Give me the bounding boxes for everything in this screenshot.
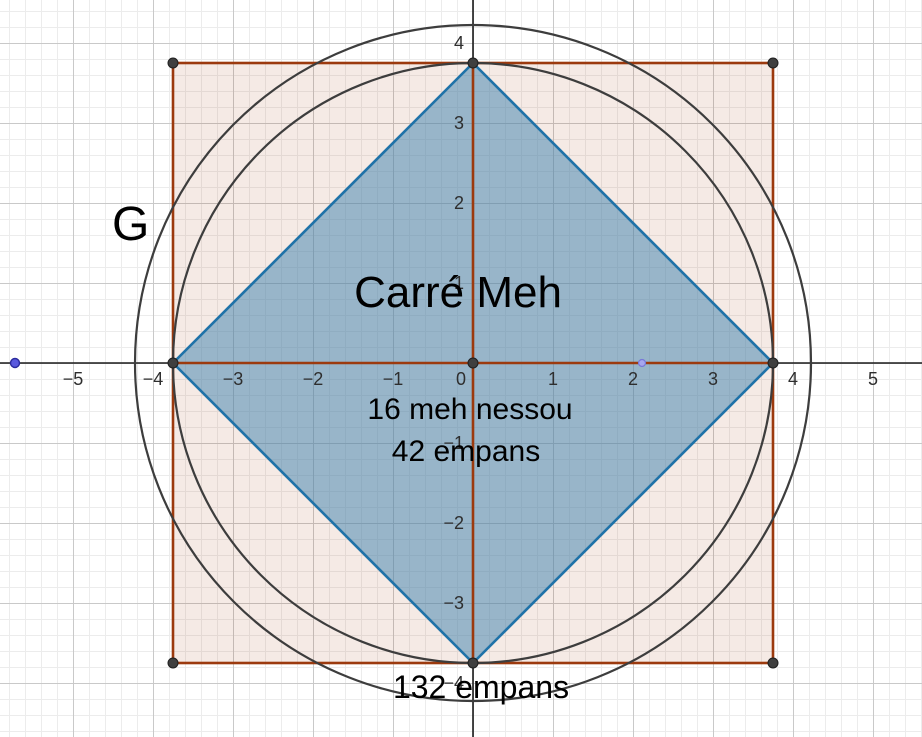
point-diamond-bottom[interactable]: [468, 658, 478, 668]
x-tick-label: 3: [708, 369, 718, 389]
x-tick-label: −2: [303, 369, 324, 389]
label-carre-meh[interactable]: Carré Meh: [354, 268, 562, 317]
point-diamond-left[interactable]: [168, 358, 178, 368]
graphics-canvas[interactable]: −5 −4 −3 −2 −1 0 1 2 3 4 5 4 3 2 1 −1 −2…: [0, 0, 922, 737]
x-tick-label: −5: [63, 369, 84, 389]
point-square-corner-bottom-left[interactable]: [168, 658, 178, 668]
y-tick-label: 2: [454, 193, 464, 213]
graphics-view[interactable]: −5 −4 −3 −2 −1 0 1 2 3 4 5 4 3 2 1 −1 −2…: [0, 0, 922, 737]
x-tick-label: 4: [788, 369, 798, 389]
x-tick-label-zero: 0: [456, 369, 466, 389]
point-diamond-top[interactable]: [468, 58, 478, 68]
point-square-corner-bottom-right[interactable]: [768, 658, 778, 668]
point-square-corner-top-left[interactable]: [168, 58, 178, 68]
x-tick-label: 2: [628, 369, 638, 389]
y-tick-label: −3: [443, 593, 464, 613]
x-tick-label: 1: [548, 369, 558, 389]
x-tick-label: −4: [143, 369, 164, 389]
label-g[interactable]: G: [112, 198, 149, 251]
label-42-empans[interactable]: 42 empans: [392, 435, 540, 468]
label-meh-nessou[interactable]: 16 meh nessou: [367, 393, 572, 426]
point-square-corner-top-right[interactable]: [768, 58, 778, 68]
y-tick-label: 4: [454, 33, 464, 53]
x-tick-label: −1: [383, 369, 404, 389]
label-132-empans[interactable]: 132 empans: [393, 669, 569, 705]
point-origin[interactable]: [468, 358, 478, 368]
point-lavender-x2[interactable]: [639, 360, 646, 367]
point-diamond-right[interactable]: [768, 358, 778, 368]
x-tick-label: −3: [223, 369, 244, 389]
y-tick-label: −2: [443, 513, 464, 533]
y-tick-label: 3: [454, 113, 464, 133]
x-tick-label: 5: [868, 369, 878, 389]
point-blue-left[interactable]: [11, 359, 20, 368]
